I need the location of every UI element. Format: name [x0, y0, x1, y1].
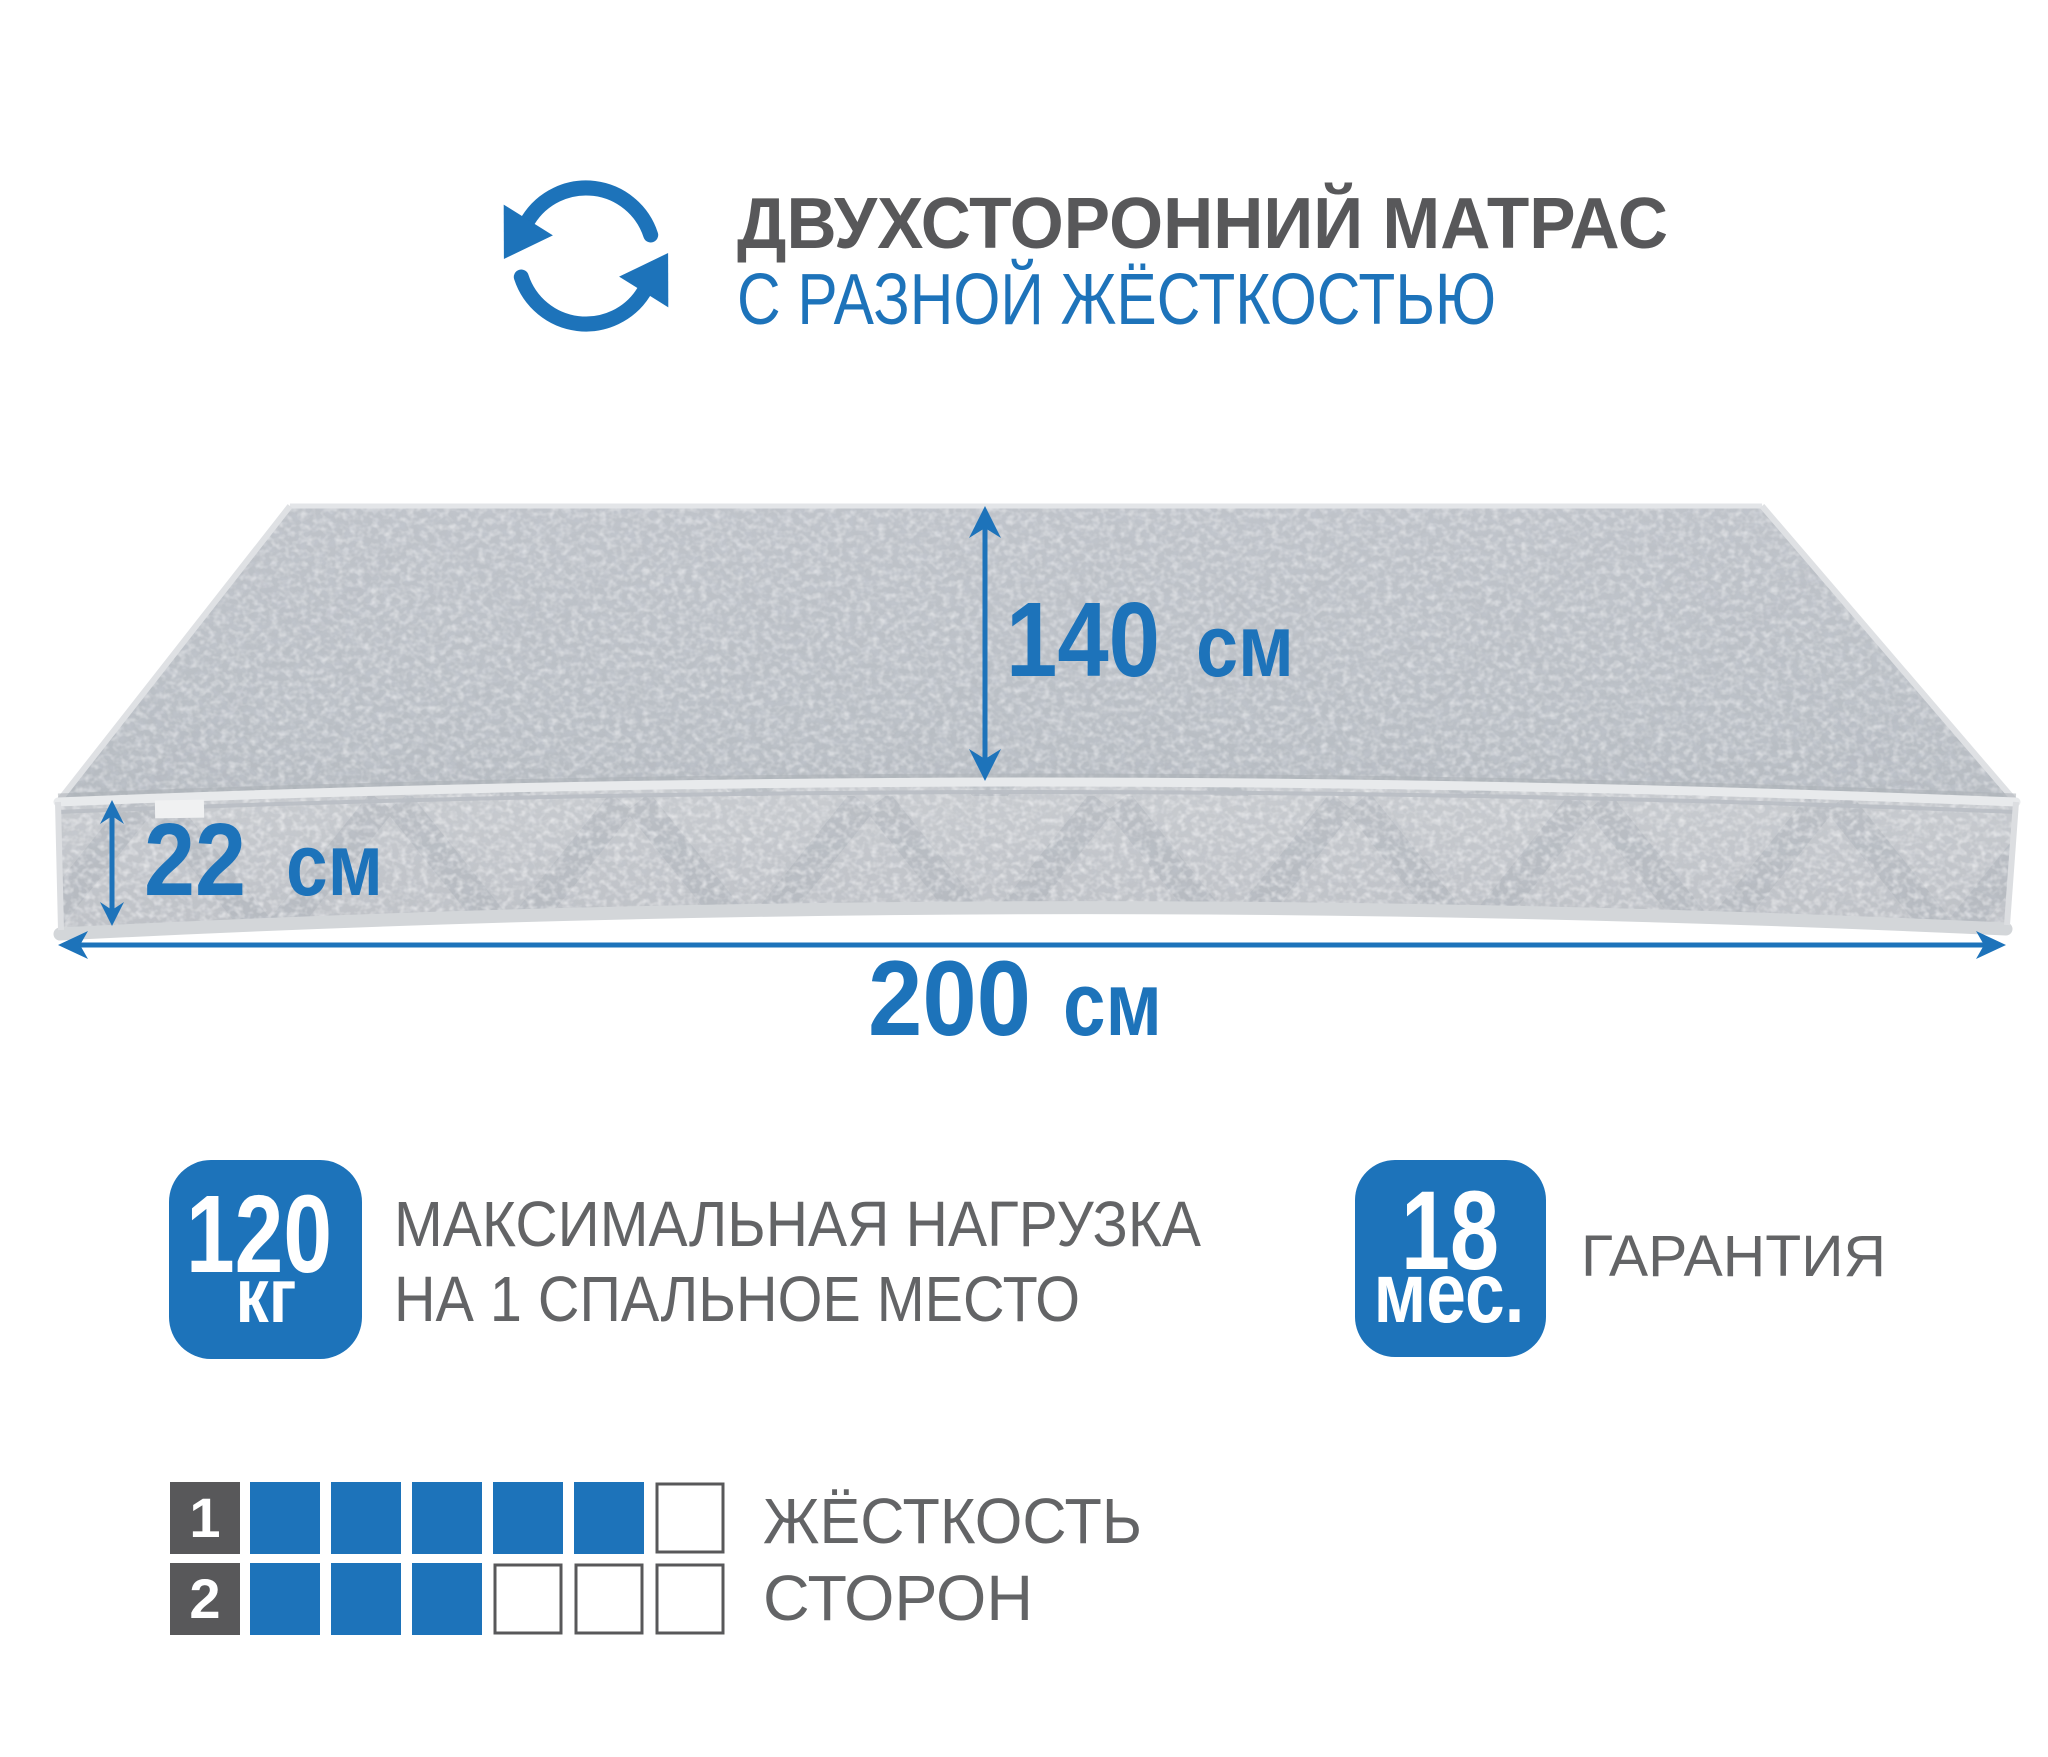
- svg-text:С РАЗНОЙ ЖЁСТКОСТЬЮ: С РАЗНОЙ ЖЁСТКОСТЬЮ: [737, 258, 1496, 340]
- svg-text:МАКСИМАЛЬНАЯ НАГРУЗКА: МАКСИМАЛЬНАЯ НАГРУЗКА: [394, 1188, 1201, 1260]
- svg-text:2: 2: [189, 1567, 220, 1630]
- svg-text:см: см: [1063, 955, 1162, 1055]
- svg-text:1: 1: [189, 1486, 220, 1549]
- svg-text:см: см: [1196, 596, 1294, 695]
- svg-text:ДВУХСТОРОННИЙ МАТРАС: ДВУХСТОРОННИЙ МАТРАС: [737, 182, 1668, 264]
- svg-text:мес.: мес.: [1374, 1246, 1525, 1341]
- svg-text:ЖЁСТКОСТЬ: ЖЁСТКОСТЬ: [763, 1485, 1142, 1557]
- svg-text:кг: кг: [236, 1253, 297, 1339]
- svg-text:НА 1 СПАЛЬНОЕ МЕСТО: НА 1 СПАЛЬНОЕ МЕСТО: [394, 1263, 1080, 1335]
- svg-text:200: 200: [868, 938, 1031, 1058]
- svg-text:СТОРОН: СТОРОН: [763, 1562, 1033, 1634]
- svg-text:22: 22: [144, 802, 246, 917]
- svg-text:см: см: [286, 815, 383, 914]
- svg-text:140: 140: [1006, 581, 1160, 699]
- svg-text:ГАРАНТИЯ: ГАРАНТИЯ: [1581, 1224, 1886, 1289]
